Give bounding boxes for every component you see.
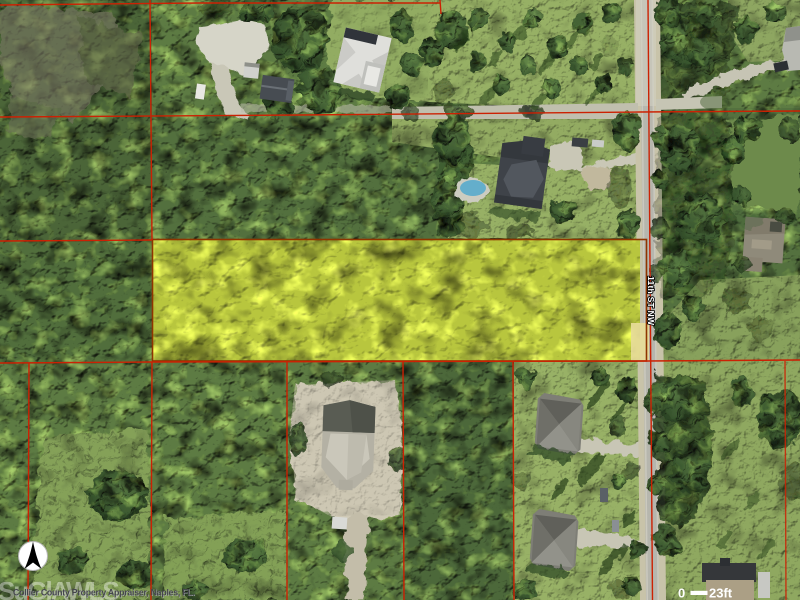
svg-text:Collier County Property Apprai: Collier County Property Appraiser, Naple… <box>13 587 195 597</box>
svg-text:11th ST NW: 11th ST NW <box>646 276 656 326</box>
svg-text:23ft: 23ft <box>709 586 733 600</box>
svg-text:0: 0 <box>678 586 685 600</box>
